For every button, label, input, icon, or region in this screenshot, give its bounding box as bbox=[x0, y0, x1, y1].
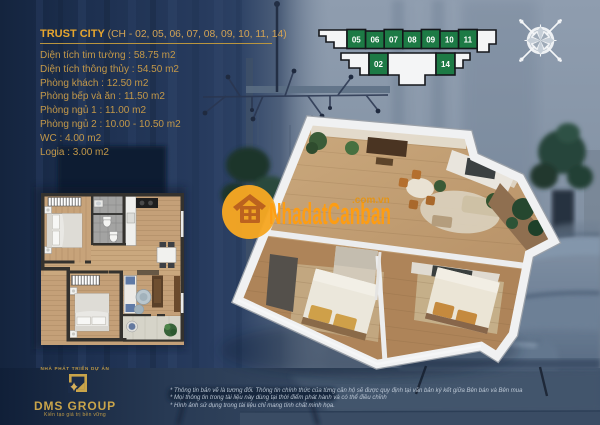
svg-text:.com.vn: .com.vn bbox=[352, 195, 390, 206]
